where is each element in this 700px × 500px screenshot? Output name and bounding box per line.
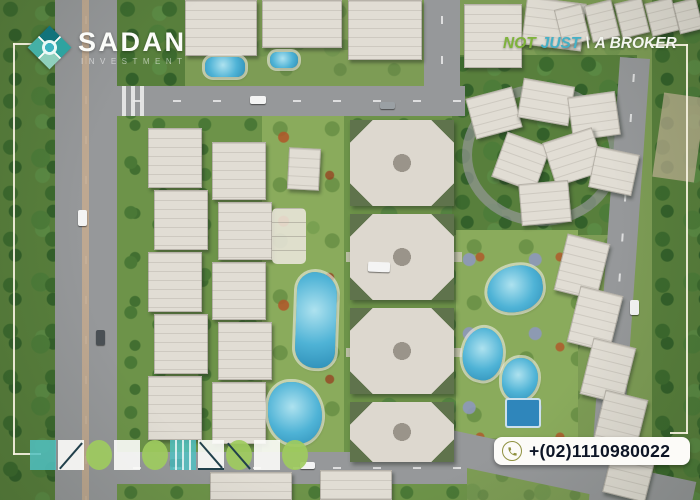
tagline-word-just: JUST bbox=[541, 35, 581, 53]
sadan-diamond-logo-icon bbox=[28, 26, 72, 70]
green-circle-shape bbox=[282, 440, 308, 470]
green-circle-shape bbox=[86, 440, 112, 470]
teal-square-stripes-shape bbox=[170, 440, 196, 470]
phone-number: +(02)1110980022 bbox=[529, 441, 670, 462]
white-square-diag-up-shape bbox=[58, 440, 84, 470]
frame-bracket-left-vertical bbox=[13, 43, 15, 455]
frame-bracket-right-bottom bbox=[670, 432, 688, 434]
brand-shapes-strip bbox=[30, 440, 308, 470]
frame-bracket-right-vertical bbox=[686, 44, 688, 434]
tagline-word-not: NOT bbox=[503, 35, 536, 53]
brand-name: SADAN bbox=[78, 27, 187, 58]
phone-pill[interactable]: +(02)1110980022 bbox=[494, 437, 690, 465]
green-circle-shape bbox=[142, 440, 168, 470]
teal-square-shape bbox=[30, 440, 56, 470]
green-circle-diag-down-shape bbox=[226, 440, 252, 470]
white-square-shape bbox=[114, 440, 140, 470]
tagline-separator: \ bbox=[585, 35, 589, 53]
brand-subtitle: INVESTMENT bbox=[81, 57, 188, 66]
white-square-shape bbox=[254, 440, 280, 470]
brand-tagline: NOT JUST \ A BROKER bbox=[503, 35, 677, 53]
white-square-tri-shape bbox=[198, 440, 224, 470]
phone-icon bbox=[502, 441, 522, 461]
tagline-word-a-broker: A BROKER bbox=[595, 35, 677, 53]
aerial-masterplan-image: SADAN INVESTMENT NOT JUST \ A BROKER +(0… bbox=[0, 0, 700, 500]
